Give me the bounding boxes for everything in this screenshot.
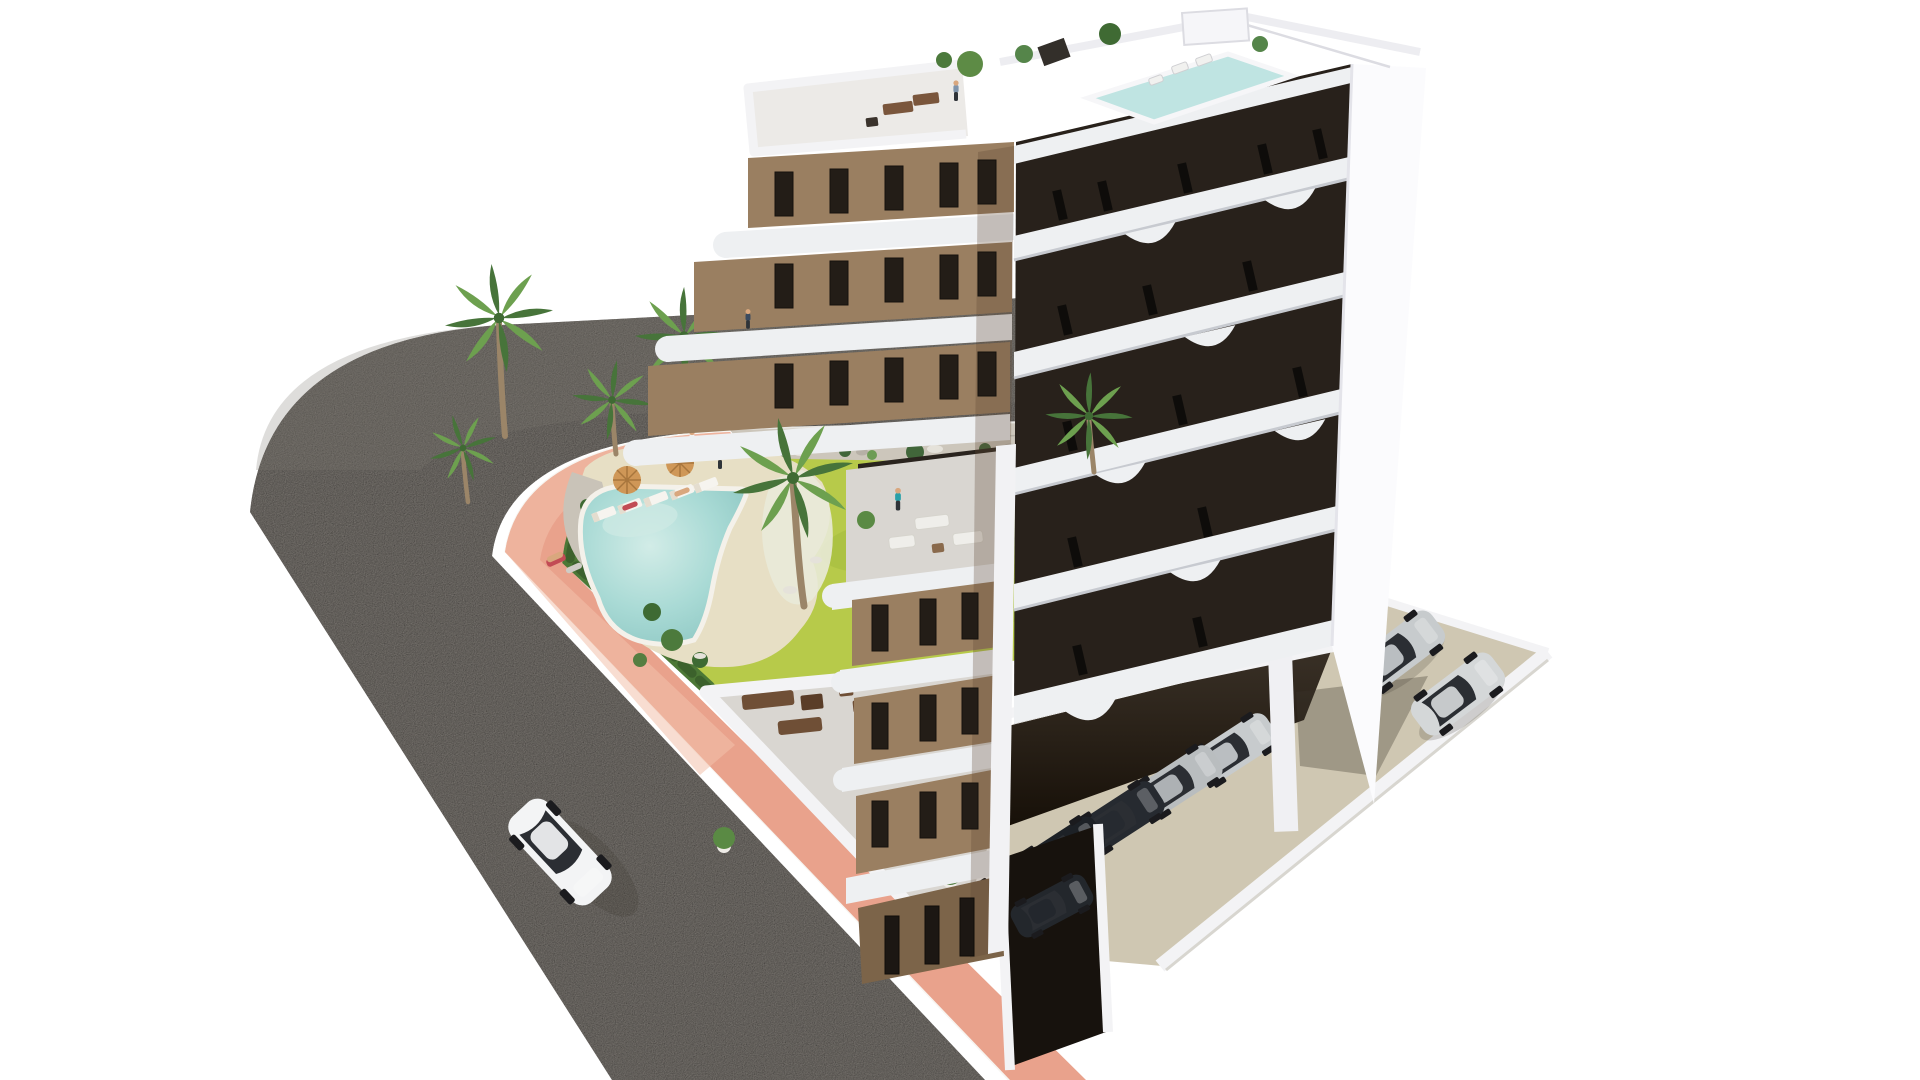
person-terrace [895, 488, 901, 511]
island-stone [783, 586, 797, 594]
rooftop-pergola-box [1037, 38, 1070, 66]
roof-parapet-line [1242, 16, 1420, 52]
scene-canvas [0, 0, 1920, 1080]
garage-opening [1002, 826, 1106, 1066]
island-stone [810, 557, 822, 564]
render-stage [0, 0, 1920, 1080]
roof-plant [936, 52, 952, 68]
roof-plant [957, 51, 983, 77]
roof-bulkhead [1182, 8, 1249, 44]
pool-umbrella [613, 466, 641, 494]
garage-entrance-group [1000, 824, 1108, 1070]
person-balcony [746, 309, 751, 329]
person-penthouse [953, 80, 958, 101]
